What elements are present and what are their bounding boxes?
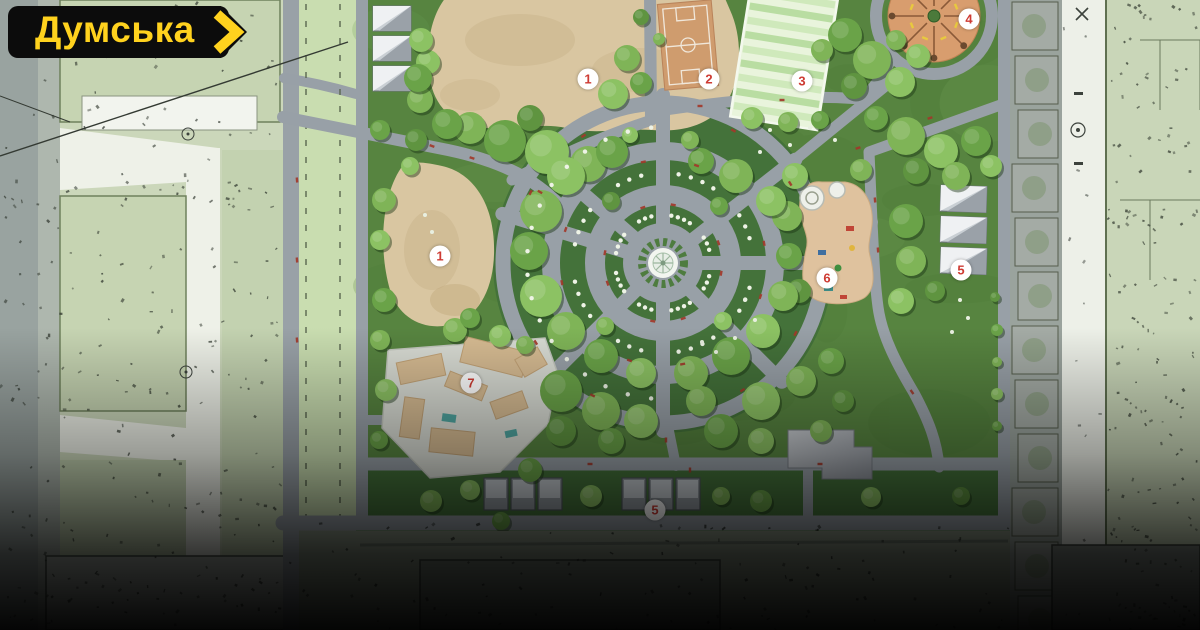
plan-marker-5b: 5 <box>645 500 666 521</box>
dumska-logo-badge[interactable]: Думська <box>8 6 229 58</box>
logo-text: Думська <box>35 9 195 51</box>
cadastral-bottom <box>356 531 1010 630</box>
plan-marker-7: 7 <box>461 373 482 394</box>
park-masterplan-image <box>0 0 1200 630</box>
kids-playground <box>800 182 873 304</box>
fountain-plaza <box>623 223 703 303</box>
plan-marker-1: 1 <box>578 69 599 90</box>
plan-marker-2: 2 <box>699 69 720 90</box>
plan-marker-3: 3 <box>792 71 813 92</box>
cadastral-right <box>1010 0 1200 630</box>
social-card: 1 2 3 4 1 6 5 7 5 Думська <box>0 0 1200 630</box>
plan-marker-6: 6 <box>817 268 838 289</box>
plan-marker-1b: 1 <box>430 246 451 267</box>
plan-marker-4: 4 <box>959 9 980 30</box>
render-strip-west <box>283 0 356 630</box>
plan-marker-5a: 5 <box>951 260 972 281</box>
logo-background: Думська <box>8 6 229 58</box>
chevron-right-icon <box>207 6 249 58</box>
